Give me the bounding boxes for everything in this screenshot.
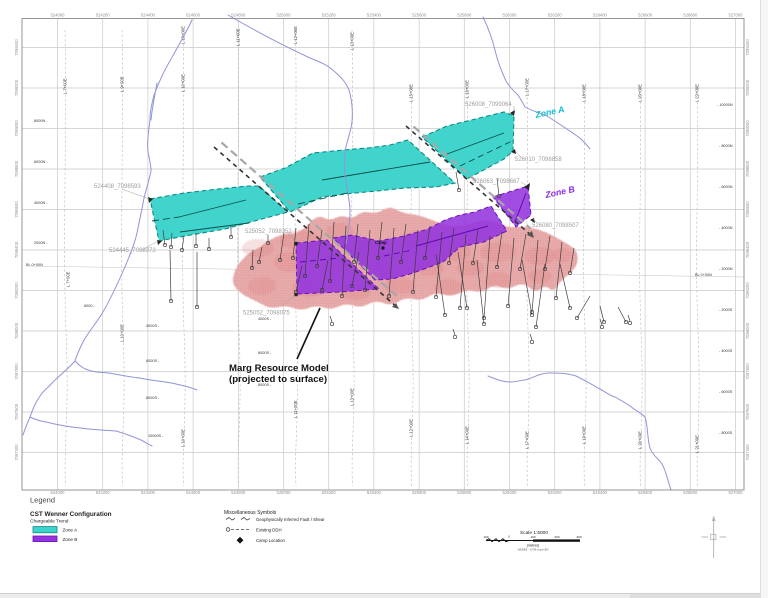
svg-text:525600: 525600 xyxy=(412,490,427,495)
svg-text:L 17+00E: L 17+00E xyxy=(525,431,530,449)
svg-text:526400: 526400 xyxy=(593,490,608,495)
svg-text:525200: 525200 xyxy=(322,490,337,495)
svg-text:525800: 525800 xyxy=(457,490,472,495)
svg-text:7098000: 7098000 xyxy=(745,322,750,339)
svg-text:L 21+00E: L 21+00E xyxy=(695,435,700,453)
svg-text:7097400: 7097400 xyxy=(745,444,750,461)
svg-text:7097800: 7097800 xyxy=(745,363,750,380)
svg-text:526400: 526400 xyxy=(593,13,608,18)
svg-text:Chargeable Trend: Chargeable Trend xyxy=(30,519,69,525)
svg-text:- 6000S: - 6000S xyxy=(719,390,733,394)
svg-text:NAD83 - UTM zone 8N: NAD83 - UTM zone 8N xyxy=(518,548,549,552)
svg-text:7098200: 7098200 xyxy=(745,282,750,299)
svg-text:L 19+00E: L 19+00E xyxy=(582,426,587,444)
svg-text:7099000: 7099000 xyxy=(14,120,19,137)
svg-text:L 17+00E: L 17+00E xyxy=(525,78,530,96)
svg-text:526010_7098858: 526010_7098858 xyxy=(515,157,562,163)
svg-text:L 9+00E: L 9+00E xyxy=(120,76,125,92)
svg-text:L 20+00E: L 20+00E xyxy=(638,431,643,449)
svg-text:526000: 526000 xyxy=(503,13,518,18)
svg-text:525400: 525400 xyxy=(367,490,382,495)
svg-text:6000N -: 6000N - xyxy=(34,160,48,164)
svg-text:Zone B: Zone B xyxy=(63,537,78,542)
svg-text:524200: 524200 xyxy=(96,490,111,495)
svg-text:L 16+00E: L 16+00E xyxy=(465,80,470,98)
svg-text:7099200: 7099200 xyxy=(14,79,19,96)
svg-text:526200: 526200 xyxy=(548,490,563,495)
svg-text:526080_7098507: 526080_7098507 xyxy=(532,223,579,229)
svg-text:525000: 525000 xyxy=(277,13,292,18)
svg-text:525052_7098352: 525052_7098352 xyxy=(245,229,292,235)
svg-text:Legend: Legend xyxy=(30,496,55,505)
svg-text:525600: 525600 xyxy=(412,13,427,18)
svg-text:524445_7098372: 524445_7098372 xyxy=(109,248,156,254)
svg-text:L 13+00E: L 13+00E xyxy=(350,388,355,406)
svg-text:7097600: 7097600 xyxy=(14,403,19,420)
svg-text:Camp Location: Camp Location xyxy=(256,538,286,543)
svg-text:524600: 524600 xyxy=(186,13,201,18)
svg-text:L 10+00E: L 10+00E xyxy=(120,324,125,342)
svg-text:L 10+00E: L 10+00E xyxy=(181,429,186,447)
svg-text:526063_7098667: 526063_7098667 xyxy=(473,179,520,185)
svg-text:7098800: 7098800 xyxy=(14,160,19,177)
svg-text:525052_7098075: 525052_7098075 xyxy=(243,311,290,317)
svg-text:7097800: 7097800 xyxy=(14,363,19,380)
svg-text:L 12+00E: L 12+00E xyxy=(293,26,298,44)
svg-text:7098600: 7098600 xyxy=(745,201,750,218)
svg-text:- 4000S: - 4000S xyxy=(719,349,733,353)
svg-text:(projected to surface): (projected to surface) xyxy=(229,374,327,385)
svg-text:525800: 525800 xyxy=(457,13,472,18)
svg-text:524800: 524800 xyxy=(231,13,246,18)
svg-text:200: 200 xyxy=(554,535,559,539)
svg-text:7098400: 7098400 xyxy=(14,241,19,258)
svg-text:Existing DDH: Existing DDH xyxy=(256,528,282,533)
svg-text:6000S -: 6000S - xyxy=(146,359,160,363)
svg-text:L 15+00E: L 15+00E xyxy=(409,84,414,102)
svg-text:526200: 526200 xyxy=(548,13,563,18)
svg-text:524408_7098593: 524408_7098593 xyxy=(94,184,141,190)
svg-text:- 6000N: - 6000N xyxy=(719,185,733,189)
svg-text:7097400: 7097400 xyxy=(14,444,19,461)
svg-text:524800: 524800 xyxy=(231,490,246,495)
svg-text:- 2000S: - 2000S xyxy=(719,308,733,312)
svg-text:L 10+00E: L 10+00E xyxy=(181,74,186,92)
svg-text:524400: 524400 xyxy=(141,490,156,495)
svg-text:524000: 524000 xyxy=(51,13,66,18)
svg-text:100: 100 xyxy=(530,535,535,539)
svg-text:7099400: 7099400 xyxy=(14,39,19,56)
svg-text:525200: 525200 xyxy=(322,13,337,18)
svg-text:527000: 527000 xyxy=(729,13,744,18)
svg-text:526800: 526800 xyxy=(683,13,698,18)
svg-text:6000S -: 6000S - xyxy=(258,351,272,355)
svg-text:- 8000S: - 8000S xyxy=(719,431,733,435)
svg-text:4000N -: 4000N - xyxy=(34,201,48,205)
svg-text:526800: 526800 xyxy=(683,490,698,495)
svg-text:L 13+00E: L 13+00E xyxy=(350,32,355,50)
svg-text:CST Wenner Configuration: CST Wenner Configuration xyxy=(30,511,112,518)
svg-text:L 11+00E: L 11+00E xyxy=(236,28,241,46)
svg-text:300: 300 xyxy=(576,535,581,539)
svg-text:527000: 527000 xyxy=(729,490,744,495)
svg-text:Marg Resource Model: Marg Resource Model xyxy=(229,363,329,374)
svg-text:526008_7099064: 526008_7099064 xyxy=(465,102,512,108)
svg-text:524200: 524200 xyxy=(96,13,111,18)
svg-text:7098400: 7098400 xyxy=(745,241,750,258)
svg-text:4000S -: 4000S - xyxy=(258,317,272,321)
svg-text:L 14+00E: L 14+00E xyxy=(465,426,470,444)
svg-text:526000: 526000 xyxy=(503,490,518,495)
svg-text:524600: 524600 xyxy=(186,490,201,495)
svg-text:8000S -: 8000S - xyxy=(146,396,160,400)
svg-text:6000 -: 6000 - xyxy=(84,304,96,308)
svg-text:4000S -: 4000S - xyxy=(146,324,160,328)
svg-text:L 18+00E: L 18+00E xyxy=(582,84,587,102)
svg-text:- 4000N: - 4000N xyxy=(719,226,733,230)
svg-text:Camp: Camp xyxy=(375,240,387,245)
svg-text:Zone A: Zone A xyxy=(63,528,78,533)
svg-text:10000S -: 10000S - xyxy=(148,434,164,438)
svg-text:525000: 525000 xyxy=(277,490,292,495)
svg-text:524400: 524400 xyxy=(141,13,156,18)
svg-text:7098200: 7098200 xyxy=(14,282,19,299)
svg-text:Geophysically Inferred Fault /: Geophysically Inferred Fault / Shear xyxy=(256,517,325,522)
svg-text:524000: 524000 xyxy=(51,490,66,495)
svg-text:100: 100 xyxy=(483,535,488,539)
svg-text:525400: 525400 xyxy=(367,13,382,18)
svg-text:7099400: 7099400 xyxy=(745,39,750,56)
svg-text:L 7+00E: L 7+00E xyxy=(66,271,71,287)
svg-text:7098600: 7098600 xyxy=(14,201,19,218)
svg-text:7098800: 7098800 xyxy=(745,160,750,177)
svg-text:L 11+00E: L 11+00E xyxy=(293,400,298,418)
svg-text:L 20+00E: L 20+00E xyxy=(638,84,643,102)
svg-text:7099000: 7099000 xyxy=(745,120,750,137)
svg-text:L 12+00E: L 12+00E xyxy=(409,419,414,437)
svg-text:Miscellaneous Symbols: Miscellaneous Symbols xyxy=(224,510,277,516)
svg-text:7097600: 7097600 xyxy=(745,403,750,420)
svg-text:- 2000N: - 2000N xyxy=(719,267,733,271)
svg-text:7098000: 7098000 xyxy=(14,322,19,339)
svg-text:- 8000N: - 8000N xyxy=(719,144,733,148)
svg-text:2000N -: 2000N - xyxy=(34,241,48,245)
svg-text:526600: 526600 xyxy=(638,13,653,18)
svg-text:L 22+00E: L 22+00E xyxy=(695,84,700,102)
svg-text:8000N -: 8000N - xyxy=(34,119,48,123)
svg-text:526600: 526600 xyxy=(638,490,653,495)
svg-text:7099200: 7099200 xyxy=(745,79,750,96)
svg-text:- 10000N: - 10000N xyxy=(717,103,733,107)
svg-text:L 7+00E: L 7+00E xyxy=(63,78,68,94)
